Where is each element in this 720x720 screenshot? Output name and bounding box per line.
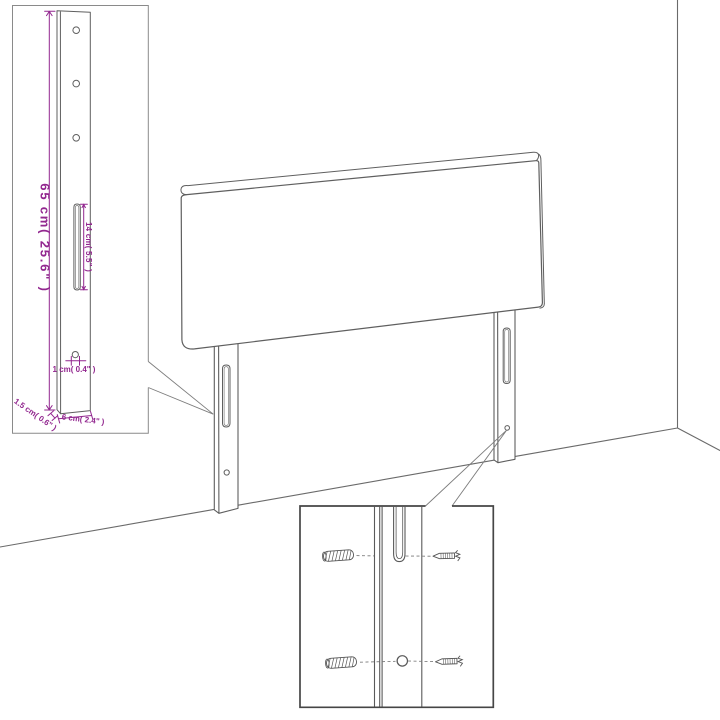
- floor-line-left: [0, 428, 678, 547]
- bottom-detail-view: [300, 506, 493, 707]
- leg-strip-lines: [375, 507, 422, 707]
- wall-plug-icon: [325, 657, 357, 669]
- left-leg-hole: [224, 470, 229, 475]
- detail-hole-1: [73, 27, 80, 34]
- diagram-svg: [0, 0, 720, 720]
- detail-hole-3: [73, 135, 80, 142]
- wall-plug-icon: [322, 550, 354, 562]
- strip-slot: [394, 507, 405, 562]
- callout-right-lines: [426, 430, 507, 506]
- detail-hole-2: [73, 80, 80, 87]
- callout-left-lines: [148, 362, 213, 415]
- dim-height-label: 65 cm( 25.6" ): [38, 183, 51, 292]
- leader-lines: [357, 556, 435, 663]
- right-leg-hole: [505, 426, 510, 431]
- floor-line-right: [678, 428, 720, 451]
- headboard-left-leg: [214, 342, 238, 513]
- dim-slot-label: 14 cm( 5.5" ): [84, 222, 92, 272]
- bottom-detail-box: [300, 506, 493, 707]
- dim-hole-label: 1 cm( 0.4" ): [53, 366, 96, 374]
- screw-icon: [433, 550, 460, 561]
- screw-icon: [435, 656, 462, 668]
- headboard-dimension-diagram: 65 cm( 25.6" ) 14 cm( 5.5" ) 1 cm( 0.4" …: [0, 0, 720, 720]
- detail-bottom-hole: [72, 352, 78, 358]
- headboard-panel: [181, 152, 544, 349]
- detail-slot: [74, 204, 80, 290]
